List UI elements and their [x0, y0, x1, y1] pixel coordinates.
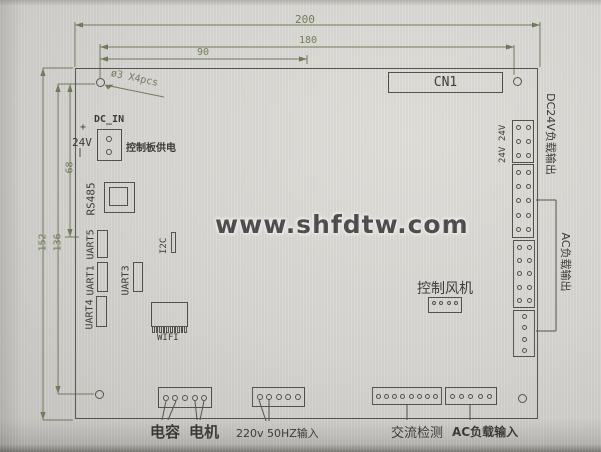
- mounting-hole-top-right: [513, 77, 522, 86]
- capacitor-label: 电容: [150, 421, 180, 442]
- ac-detect-label: 交流检测: [391, 422, 443, 441]
- i2c-connector: [171, 232, 176, 253]
- mounting-hole-bottom-left: [95, 390, 104, 399]
- ac-load-input-connector: [445, 387, 497, 405]
- fan-connector: [428, 297, 462, 313]
- cn1-label: CN1: [434, 75, 457, 90]
- v24-label-b: 24V: [498, 141, 508, 163]
- dimension-180: 180: [299, 35, 317, 46]
- terminal-block-4: [513, 310, 535, 357]
- cap-motor-connector: [158, 387, 212, 408]
- pcb-drawing-photo: 200 180 90 152 136 68 ø3 X4pcs CN1 DC_IN…: [0, 0, 601, 452]
- uart3-label: UART3: [121, 256, 132, 296]
- uart4-label: UART4: [85, 290, 96, 330]
- dc-in-label: DC_IN: [94, 114, 124, 125]
- v24-label-a: 24V: [498, 119, 508, 141]
- uart3-connector: [133, 262, 143, 292]
- mains-input-label: 220v 50HZ输入: [236, 425, 319, 441]
- dimension-152: 152: [38, 228, 49, 252]
- motor-label: 电机: [189, 421, 219, 442]
- dimension-68: 68: [65, 156, 76, 174]
- dc-in-voltage: 24V: [72, 136, 92, 149]
- rs485-label: RS485: [85, 180, 98, 216]
- mounting-hole-top-left: [96, 78, 105, 87]
- terminal-block-3: [513, 240, 535, 308]
- mounting-hole-bottom-right: [518, 394, 527, 403]
- wifi-module: [151, 302, 188, 327]
- uart5-connector: [97, 230, 108, 258]
- dimension-136: 136: [53, 228, 64, 252]
- uart1-connector: [97, 262, 108, 292]
- board-power-label: 控制板供电: [126, 139, 176, 154]
- terminal-block-2: [512, 164, 534, 238]
- dc24v-load-output-label: DC24V负载输出: [543, 84, 559, 184]
- mains-input-connector: [252, 387, 305, 407]
- dimension-90: 90: [197, 47, 209, 58]
- connector-cn1: CN1: [388, 72, 503, 93]
- terminal-block-24v: [512, 120, 534, 163]
- fan-control-label: 控制风机: [417, 278, 473, 298]
- ac-load-output-label: AC负载输出: [558, 224, 574, 300]
- rs485-connector: [104, 182, 135, 213]
- uart5-label: UART5: [86, 220, 97, 260]
- dc-in-plus-sign: +: [80, 122, 86, 133]
- ac-detect-connector: [372, 387, 442, 405]
- uart4-connector: [96, 296, 107, 327]
- pcb-board-outline: [75, 68, 538, 419]
- ac-load-input-label: AC负载输入: [452, 423, 518, 440]
- watermark-text: www.shfdtw.com: [215, 210, 469, 239]
- dc-in-connector: [97, 129, 122, 161]
- dimension-200: 200: [295, 13, 315, 26]
- wifi-label: WIFI: [157, 333, 179, 343]
- i2c-label: I2C: [159, 230, 169, 254]
